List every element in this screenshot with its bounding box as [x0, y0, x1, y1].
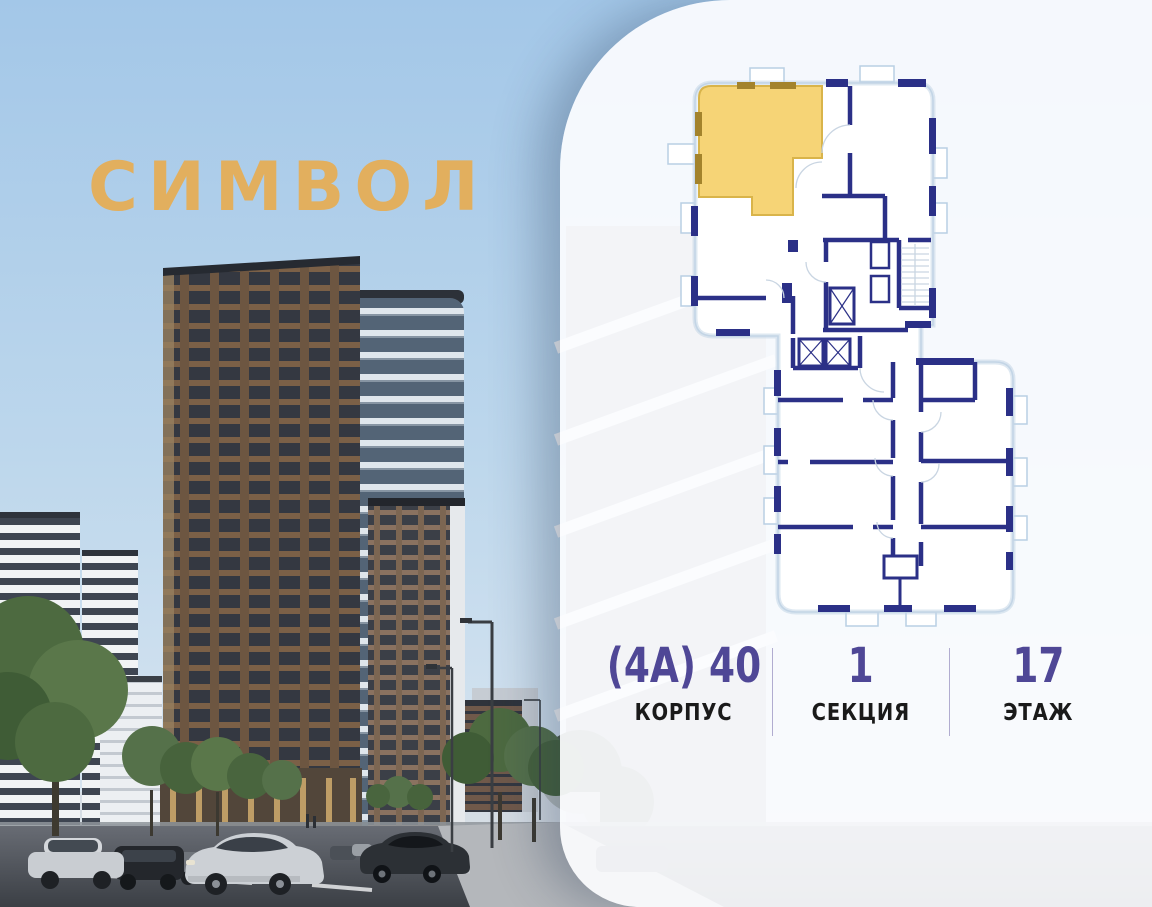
building-label: КОРПУС — [635, 700, 733, 726]
detail-separator — [949, 648, 950, 736]
building-value: (4А) 40 — [607, 642, 761, 690]
page: СИМВОЛ — [0, 0, 1152, 907]
detail-building: (4А) 40 КОРПУС — [596, 642, 772, 742]
floorplan — [650, 40, 1120, 640]
detail-separator — [772, 648, 773, 736]
section-label: СЕКЦИЯ — [812, 700, 910, 726]
floor-label: ЭТАЖ — [1003, 700, 1073, 726]
detail-floor: 17 ЭТАЖ — [950, 642, 1126, 742]
apartment-details: (4А) 40 КОРПУС 1 СЕКЦИЯ 17 ЭТАЖ — [596, 642, 1126, 742]
brand-logo: СИМВОЛ — [88, 148, 489, 227]
right-brown-tower — [368, 498, 465, 830]
floor-value: 17 — [1012, 642, 1064, 690]
section-value: 1 — [848, 642, 874, 690]
detail-section: 1 СЕКЦИЯ — [773, 642, 949, 742]
